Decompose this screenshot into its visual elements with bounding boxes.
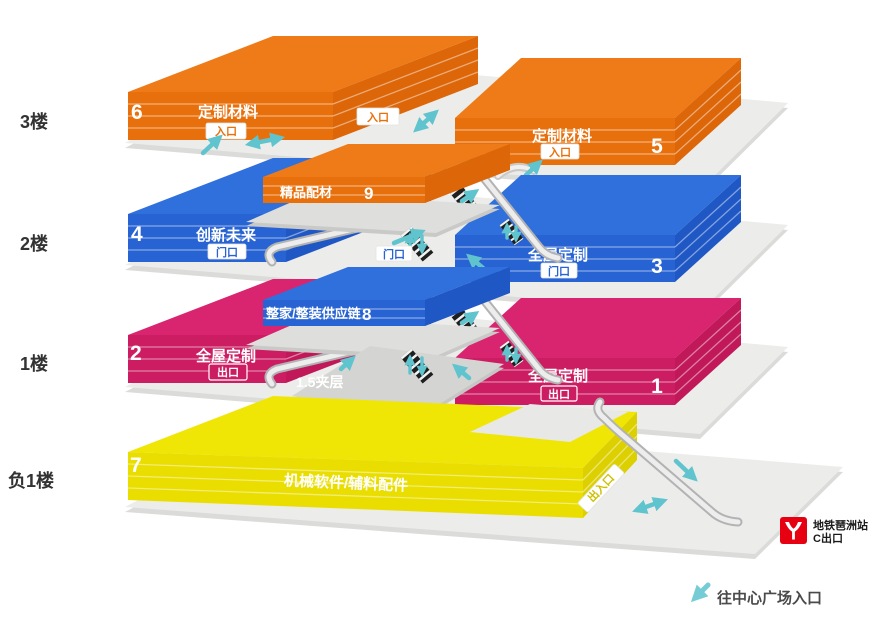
svg-text:入口: 入口 bbox=[367, 111, 389, 124]
mezzanine-label: 1.5夹层 bbox=[296, 374, 343, 390]
door-badge-f2-center: 门口 bbox=[376, 246, 412, 261]
floor-map: 3楼 2楼 1楼 负1楼 6 定制材料 入口 定制材料 5 入口 bbox=[0, 0, 870, 632]
arrow-down-left-icon bbox=[695, 585, 708, 598]
hall-3-number: 3 bbox=[651, 255, 663, 278]
hall-7-number: 7 bbox=[130, 454, 142, 477]
hall-8-number: 8 bbox=[362, 305, 371, 324]
hall-2-exit-label: 出口 bbox=[217, 365, 239, 379]
plaza-entrance-legend: 往中心广场入口 bbox=[695, 585, 822, 607]
hall-4-number: 4 bbox=[131, 223, 143, 246]
hall-2-name: 全屋定制 bbox=[195, 347, 256, 365]
hall-3-door-label: 门口 bbox=[548, 264, 570, 278]
hall-5-name: 定制材料 bbox=[532, 127, 592, 145]
hall-6-name: 定制材料 bbox=[198, 103, 258, 121]
metro-station-label: 地铁琶洲站 bbox=[813, 518, 868, 532]
hall-5-number: 5 bbox=[651, 135, 663, 158]
hall-5-entrance-label: 入口 bbox=[549, 146, 571, 159]
floor-label-2: 2楼 bbox=[20, 233, 48, 254]
svg-text:门口: 门口 bbox=[383, 247, 405, 261]
hall-6-number: 6 bbox=[131, 101, 143, 124]
hall-9-number: 9 bbox=[364, 184, 373, 203]
floor-label-3: 3楼 bbox=[20, 111, 48, 132]
hall-8-name: 整家/整装供应链 bbox=[265, 306, 362, 321]
plaza-entrance-label: 往中心广场入口 bbox=[717, 589, 822, 607]
hall-1-number: 1 bbox=[651, 375, 663, 398]
floor-label-1: 1楼 bbox=[20, 353, 48, 374]
hall-2-number: 2 bbox=[130, 342, 142, 365]
hall-4-name: 创新未来 bbox=[195, 226, 257, 244]
hall-4-door-label: 门口 bbox=[216, 245, 238, 259]
metro-logo-icon bbox=[780, 517, 807, 544]
floor-label-b1: 负1楼 bbox=[8, 470, 54, 491]
hall-1-exit-label: 出口 bbox=[548, 387, 570, 401]
hall-7-block: 7 机械软件/辅料配件 出入口 bbox=[128, 396, 637, 518]
entrance-badge-f3-center: 入口 bbox=[357, 108, 399, 125]
hall-9-name: 精品配材 bbox=[280, 185, 332, 200]
metro-exit: 地铁琶洲站 C出口 bbox=[780, 517, 868, 545]
isometric-floor-diagram: 3楼 2楼 1楼 负1楼 6 定制材料 入口 定制材料 5 入口 bbox=[0, 0, 870, 632]
metro-exit-label: C出口 bbox=[813, 531, 843, 545]
